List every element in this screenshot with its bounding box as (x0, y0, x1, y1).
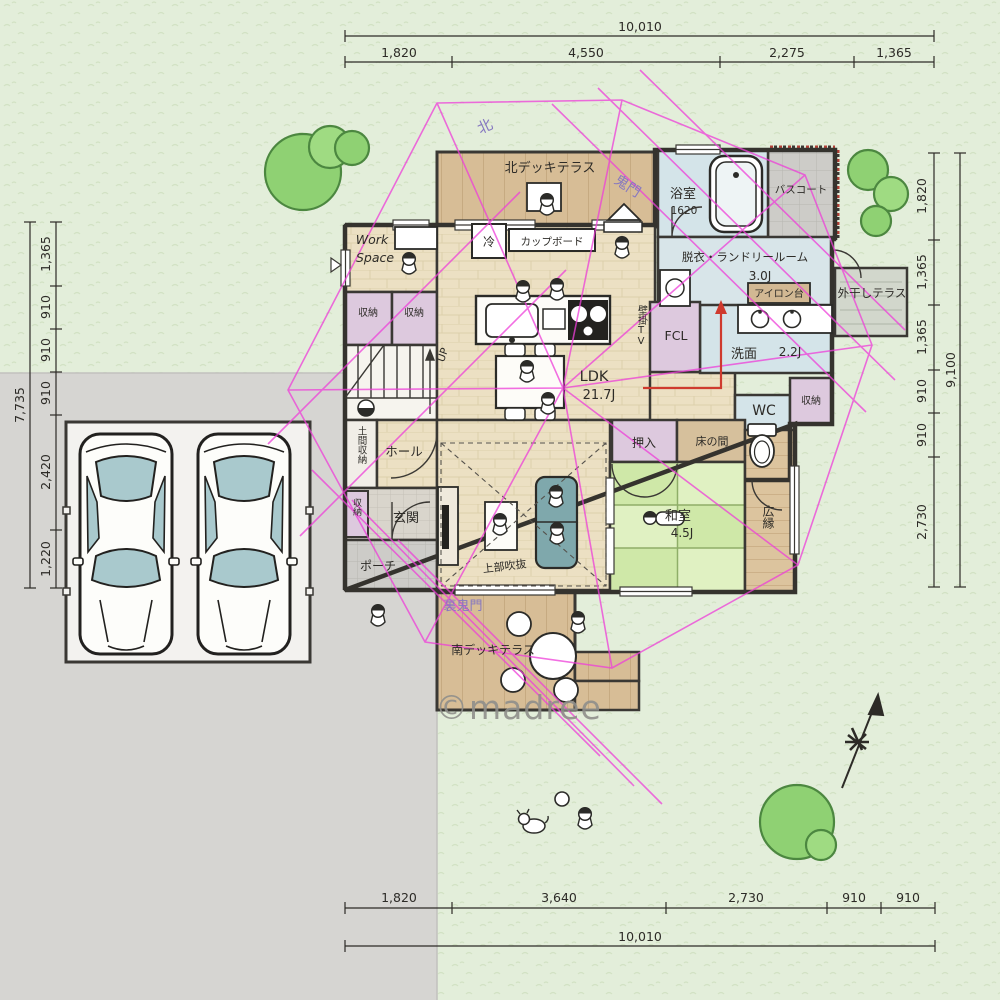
label-ldk: LDK (580, 369, 609, 385)
label-veranda: 広縁 (761, 505, 775, 529)
dim-right-seg-0: 1,820 (914, 178, 929, 214)
dim-right-seg-5: 2,730 (914, 504, 929, 540)
label-space: Space (356, 250, 394, 265)
car-left (73, 434, 179, 654)
dim-right-seg-1: 1,365 (914, 254, 929, 290)
dim-bottom-seg-1: 3,640 (541, 890, 577, 905)
floor-plan-canvas: 10,010 1,820 4,550 2,275 1,365 1,820 3,6… (0, 0, 1000, 1000)
workspace-desk (395, 227, 437, 249)
label-hall: ホール (385, 444, 423, 459)
dim-right-total: 9,100 (943, 352, 958, 388)
label-tokonoma: 床の間 (696, 434, 729, 448)
label-porch: ポーチ (360, 559, 396, 573)
label-entrance: 玄関 (393, 511, 419, 526)
dim-top-seg-1: 4,550 (568, 45, 604, 60)
dim-left-seg-1: 910 (38, 295, 53, 319)
label-entrance-closet: 収納 (351, 497, 362, 517)
dim-top-seg-2: 2,275 (769, 45, 805, 60)
label-fridge: 冷 (483, 235, 495, 249)
dim-left-seg-2: 910 (38, 338, 53, 362)
dim-left-seg-0: 1,365 (38, 236, 53, 272)
label-north-deck: 北デッキテラス (505, 160, 596, 176)
corridor (650, 372, 735, 424)
label-fcl: FCL (665, 328, 688, 343)
label-south-deck: 南デッキテラス (451, 642, 535, 657)
dim-bottom-seg-0: 1,820 (381, 890, 417, 905)
watermark: ©madree (435, 688, 602, 727)
floor-plan: 10,010 1,820 4,550 2,275 1,365 1,820 3,6… (0, 0, 1000, 1000)
label-closet-a: 収納 (358, 306, 378, 319)
toilet (748, 424, 776, 467)
label-bathroom: 浴室 (670, 186, 696, 202)
label-wall-tv: 壁掛TV (636, 304, 648, 347)
label-wc: WC (752, 403, 776, 419)
dim-left-seg-4: 2,420 (38, 454, 53, 490)
label-ura-kimon: 裏鬼門 (443, 598, 482, 614)
dim-right-seg-2: 1,365 (914, 319, 929, 355)
label-doma-storage: 土間収納 (356, 425, 368, 465)
dim-right-seg-3: 910 (914, 379, 929, 403)
dim-bottom-total: 10,010 (618, 929, 662, 944)
label-ldk-size: 21.7J (583, 388, 616, 403)
label-laundry: 脱衣・ランドリールーム (682, 250, 808, 264)
dim-bottom-seg-3: 910 (842, 890, 866, 905)
dim-right-seg-4: 910 (914, 423, 929, 447)
label-washitsu: 和室 (665, 508, 691, 524)
dim-left-seg-5: 1,220 (38, 541, 53, 577)
dim-top-seg-3: 1,365 (876, 45, 912, 60)
label-washroom: 洗面 (731, 347, 757, 362)
label-closet-b: 収納 (404, 306, 424, 319)
washroom-fixtures (738, 305, 832, 333)
dim-left-total: 7,735 (12, 387, 27, 423)
dim-left-seg-3: 910 (38, 381, 53, 405)
label-cupboard: カップボード (521, 236, 584, 248)
dim-bottom-seg-4: 910 (896, 890, 920, 905)
label-washroom-size: 2.2J (779, 345, 802, 359)
carport (63, 422, 313, 662)
label-work: Work (356, 232, 389, 247)
dim-top-total: 10,010 (618, 19, 662, 34)
label-drying-terrace: 外干しテラス (838, 286, 907, 300)
dim-top-seg-0: 1,820 (381, 45, 417, 60)
label-oshiire: 押入 (632, 436, 656, 450)
car-right (191, 434, 297, 654)
label-bath-court: バスコート (775, 184, 828, 196)
dim-bottom-seg-2: 2,730 (728, 890, 764, 905)
label-storage-washroom: 収納 (801, 394, 821, 407)
label-washitsu-size: 4.5J (671, 526, 694, 540)
label-bathroom-size: 1620 (671, 205, 698, 217)
label-iron-board: アイロン台 (754, 287, 804, 300)
label-laundry-size: 3.0J (749, 269, 772, 283)
